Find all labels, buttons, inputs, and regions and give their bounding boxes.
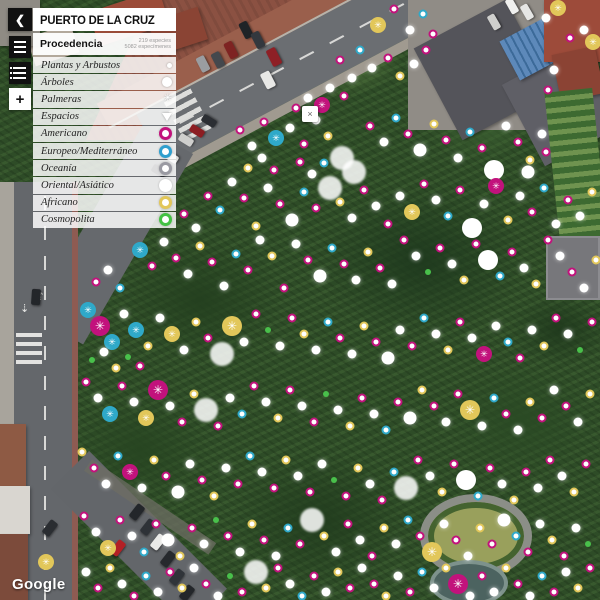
legend-swatch-africano: [159, 196, 172, 209]
hamburger-icon: [14, 41, 26, 43]
building-bl-2: [0, 486, 30, 534]
legend-europeo-mediterraneo[interactable]: Europeo/Mediterráneo: [33, 143, 176, 159]
section-title: Procedencia: [40, 38, 102, 50]
zoom-in-button[interactable]: +: [9, 88, 31, 110]
procedencia-header[interactable]: Procedencia 219 especies5082 especímenes: [33, 33, 176, 55]
legend-swatch-cosmopolita: [159, 213, 172, 226]
legend-cosmopolita[interactable]: Cosmopolita: [33, 212, 176, 228]
building-gray-right: [546, 236, 600, 300]
category-espacios[interactable]: Espacios: [33, 109, 176, 125]
asterisk-icon: ✳: [164, 94, 172, 104]
circle-icon: [162, 77, 172, 87]
list-icon: [13, 67, 26, 69]
legend-swatch-americano: [159, 127, 172, 140]
legend-americano[interactable]: Americano: [33, 126, 176, 142]
panel-rows: Plantas y Arbustos Árboles Palmeras ✳ Es…: [33, 57, 176, 228]
legend-africano[interactable]: Africano: [33, 195, 176, 211]
map-app: ⇡ ⇣ ✳✳✳✳✳✳✳✳✳✳✳✳✳✳✳✳✳✳✳✳✳✳✳✳✳✳✳✳ × ❮ PUE…: [0, 0, 600, 600]
back-button[interactable]: ❮: [8, 8, 32, 31]
category-arboles[interactable]: Árboles: [33, 74, 176, 90]
triangle-icon: [162, 113, 172, 121]
dot-icon: [167, 63, 172, 68]
legend-oceania[interactable]: Oceanía: [33, 160, 176, 176]
hamburger-menu-button[interactable]: [9, 36, 31, 58]
crosswalk-left: [16, 332, 42, 364]
legend-list-button[interactable]: [9, 62, 31, 84]
map-popup-close[interactable]: ×: [302, 106, 318, 122]
pond: [430, 560, 508, 600]
legend-swatch-oceania: [159, 162, 172, 175]
google-attribution[interactable]: Google: [12, 576, 65, 593]
legend-oriental-asiatico[interactable]: Oriental/Asiático: [33, 177, 176, 193]
page-title: PUERTO DE LA CRUZ: [40, 13, 155, 27]
category-plantas-y-arbustos[interactable]: Plantas y Arbustos: [33, 57, 176, 73]
building-bl-1: [0, 424, 26, 486]
species-stats: 219 especies5082 especímenes: [125, 38, 171, 51]
legend-swatch-europeo: [159, 145, 172, 158]
category-palmeras[interactable]: Palmeras ✳: [33, 91, 176, 107]
title-bar: PUERTO DE LA CRUZ: [33, 8, 176, 31]
legend-swatch-oriental: [159, 179, 172, 192]
